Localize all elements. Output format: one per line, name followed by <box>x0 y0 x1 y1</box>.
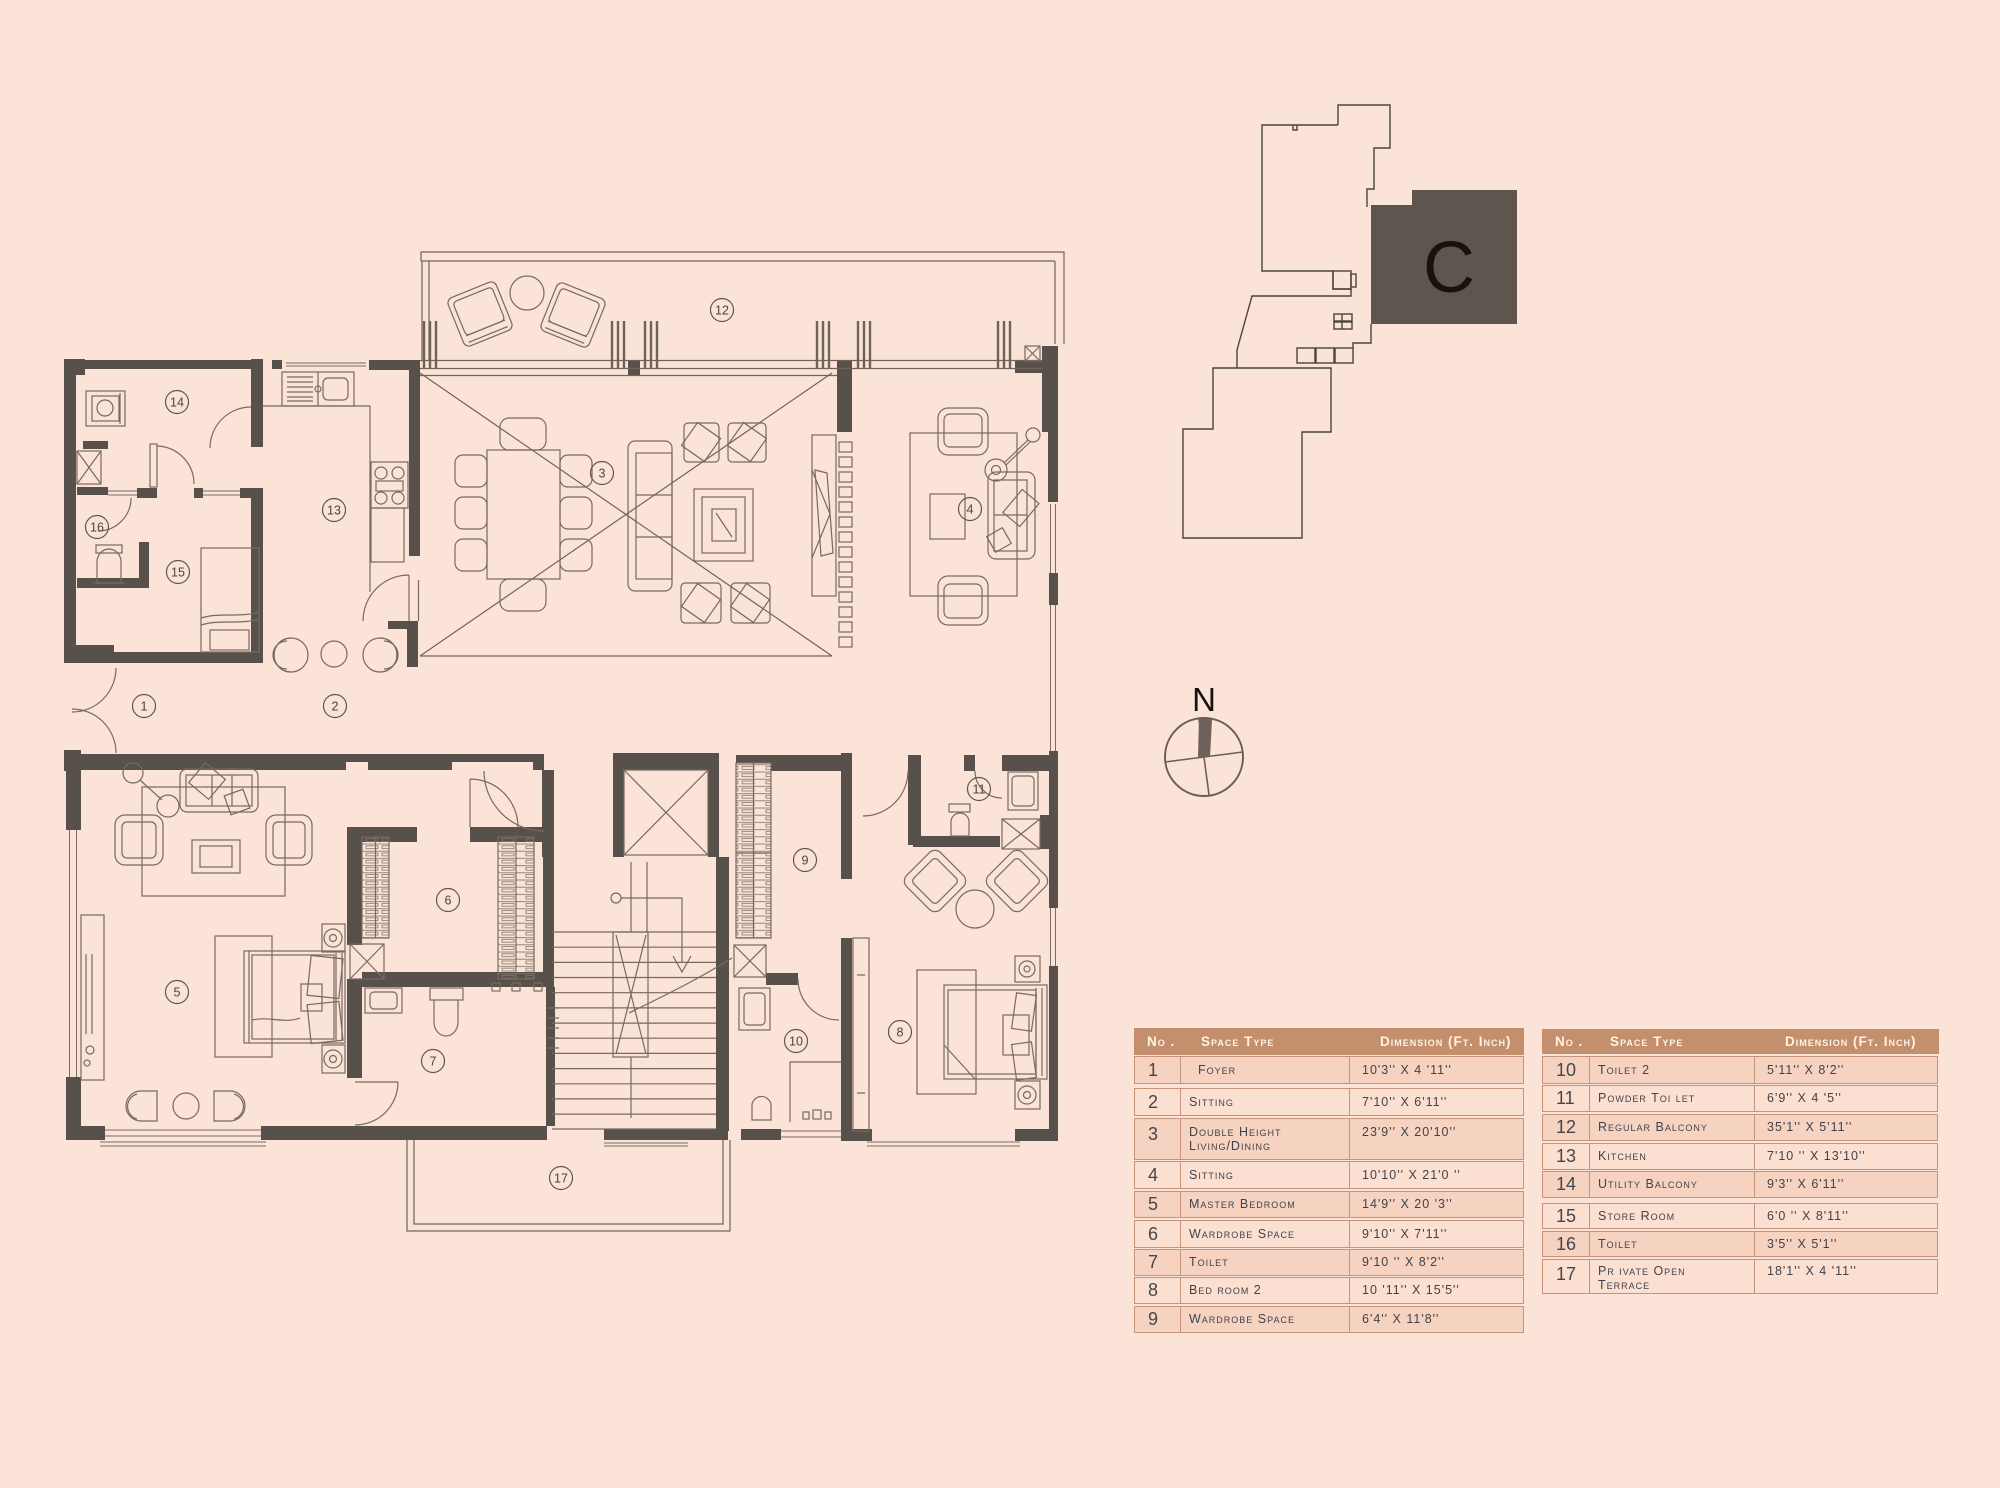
svg-text:13: 13 <box>327 504 341 518</box>
svg-text:8: 8 <box>897 1026 904 1040</box>
svg-text:10: 10 <box>789 1035 803 1049</box>
svg-text:15: 15 <box>171 566 185 580</box>
svg-text:5: 5 <box>174 986 181 1000</box>
svg-text:7: 7 <box>430 1055 437 1069</box>
svg-text:3: 3 <box>599 467 606 481</box>
svg-text:12: 12 <box>715 304 729 318</box>
svg-text:4: 4 <box>967 503 974 517</box>
svg-text:1: 1 <box>141 700 148 714</box>
svg-text:16: 16 <box>90 521 104 535</box>
svg-text:2: 2 <box>332 700 339 714</box>
svg-text:17: 17 <box>554 1172 568 1186</box>
svg-text:C: C <box>1423 228 1475 308</box>
svg-text:14: 14 <box>170 396 184 410</box>
svg-text:6: 6 <box>445 894 452 908</box>
svg-text:9: 9 <box>802 854 809 868</box>
svg-text:N: N <box>1192 681 1216 718</box>
svg-text:11: 11 <box>973 783 986 797</box>
